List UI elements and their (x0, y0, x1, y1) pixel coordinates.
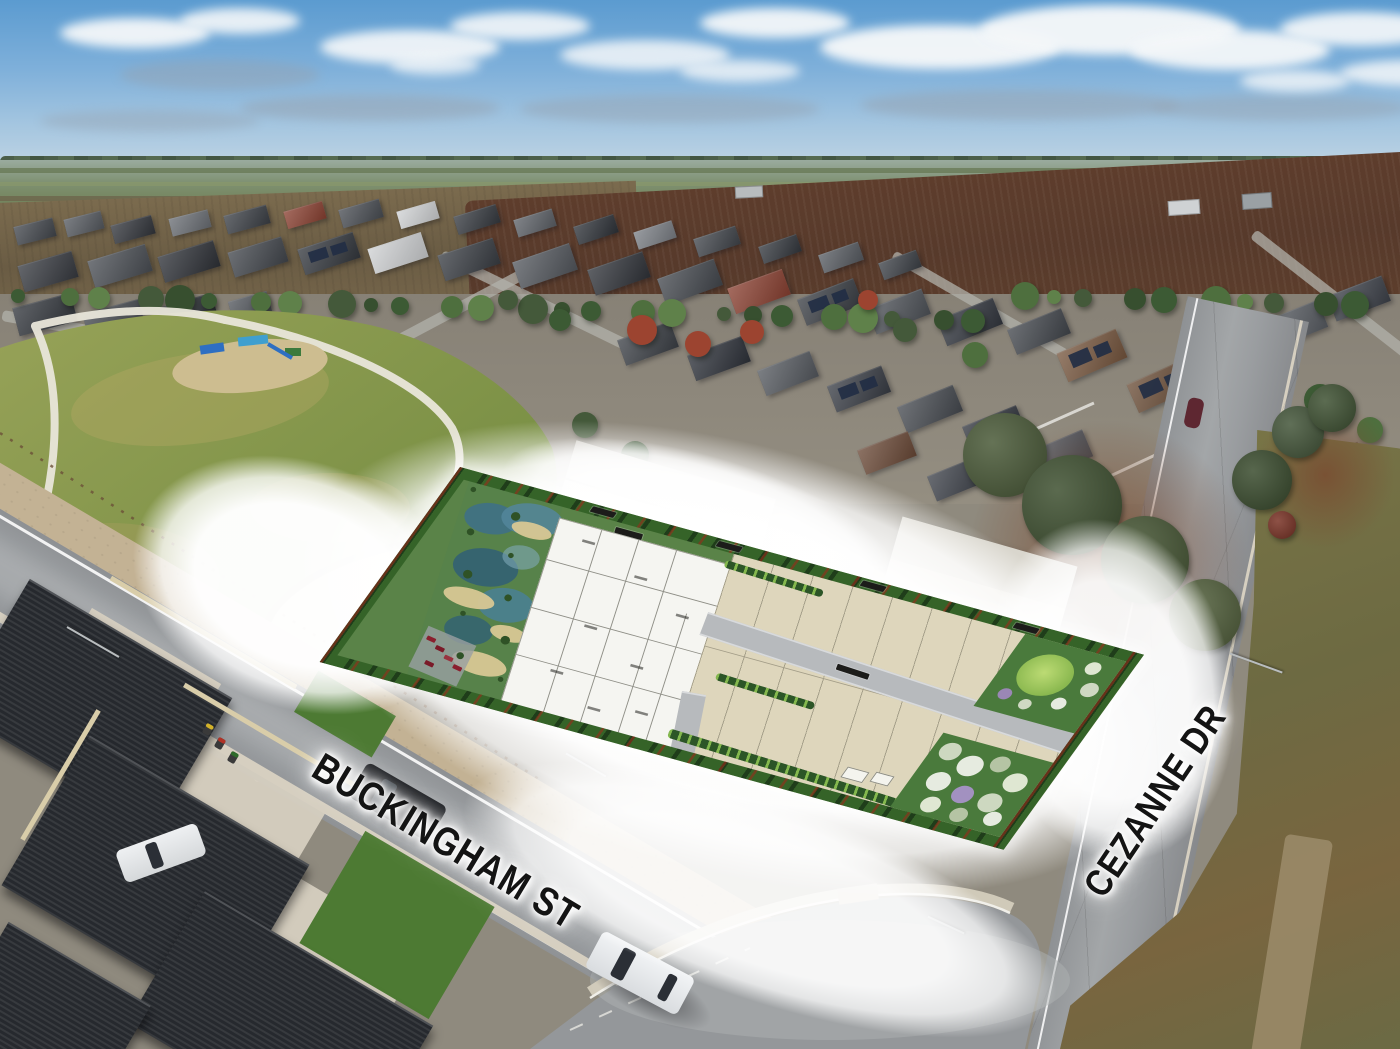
farm-shed (1168, 199, 1201, 216)
gum-tree (1101, 516, 1189, 604)
cloud (40, 110, 260, 132)
tree (821, 304, 847, 330)
plan-shrub (979, 810, 1005, 828)
cloud (520, 95, 820, 123)
cloud (120, 60, 320, 90)
room-label (550, 669, 563, 675)
room-label (582, 539, 595, 545)
solar-panel (307, 246, 329, 263)
room-label (635, 710, 648, 716)
solar-panel (1138, 377, 1164, 398)
tree (1314, 292, 1338, 316)
solar-panel (330, 242, 347, 256)
plan-shrub (998, 771, 1033, 795)
aerial-photo-canvas: BUCKINGHAM ST CEZANNE DR (0, 0, 1400, 1049)
windscreen (144, 841, 164, 870)
gum-tree (1169, 579, 1241, 651)
tree (771, 305, 793, 327)
solar-panel (1093, 341, 1113, 358)
tree (1124, 288, 1146, 310)
tree (1011, 282, 1039, 310)
wall-line (547, 559, 718, 607)
sky (0, 0, 1400, 175)
tree (1264, 293, 1284, 313)
wall-line (516, 654, 687, 702)
road-intersection (450, 840, 1170, 1049)
plan-shrub (916, 795, 945, 815)
plan-shrub (986, 754, 1015, 774)
plan-tree (497, 676, 504, 682)
tree (1074, 289, 1092, 307)
gum-tree (1308, 384, 1356, 432)
room-label (634, 575, 647, 581)
tree (893, 318, 917, 342)
room-label (587, 706, 600, 712)
plan-tree (466, 528, 475, 537)
plan-shrub (1048, 696, 1070, 711)
plan-label-chip (614, 527, 643, 540)
room-label (630, 664, 643, 670)
plan-shrub (995, 687, 1015, 701)
solar-panel (860, 376, 878, 391)
cloud (860, 90, 1180, 120)
tree (1151, 287, 1177, 313)
cloud (1150, 95, 1400, 121)
dry-grass-patch (250, 473, 410, 543)
room-label (676, 614, 689, 620)
plan-shrub (1082, 661, 1105, 677)
tree (934, 310, 954, 330)
plan-tree (470, 486, 477, 492)
tree (962, 342, 988, 368)
plan-shrub (921, 770, 956, 794)
gum-tree (1268, 511, 1296, 539)
cloud (180, 8, 300, 34)
autumn-tree (685, 331, 711, 357)
cloud (700, 8, 850, 38)
gum-tree (1232, 450, 1292, 510)
solar-panel (1068, 347, 1093, 368)
autumn-tree (858, 290, 878, 310)
cloud (450, 12, 590, 40)
plan-big-tree (1006, 649, 1084, 702)
cloud (1240, 70, 1350, 92)
tree (961, 309, 985, 333)
farm-shed (1241, 192, 1272, 210)
plan-shrub (946, 806, 972, 824)
tree (717, 307, 731, 321)
cloud (240, 95, 500, 121)
cloud (390, 55, 480, 75)
wall-line (542, 530, 602, 714)
plan-shrub (1015, 698, 1034, 711)
plan-road-label (836, 664, 870, 680)
rear-window (656, 973, 678, 1002)
tree (658, 299, 686, 327)
plan-shrub (1077, 681, 1103, 699)
tree (1341, 291, 1369, 319)
solar-panel (831, 289, 849, 304)
plan-shrub (947, 783, 979, 805)
windscreen (610, 947, 637, 982)
farm-shed (735, 185, 764, 198)
tree (1047, 290, 1061, 304)
solar-panel (837, 382, 860, 400)
cloud (680, 60, 800, 82)
autumn-tree (740, 320, 764, 344)
